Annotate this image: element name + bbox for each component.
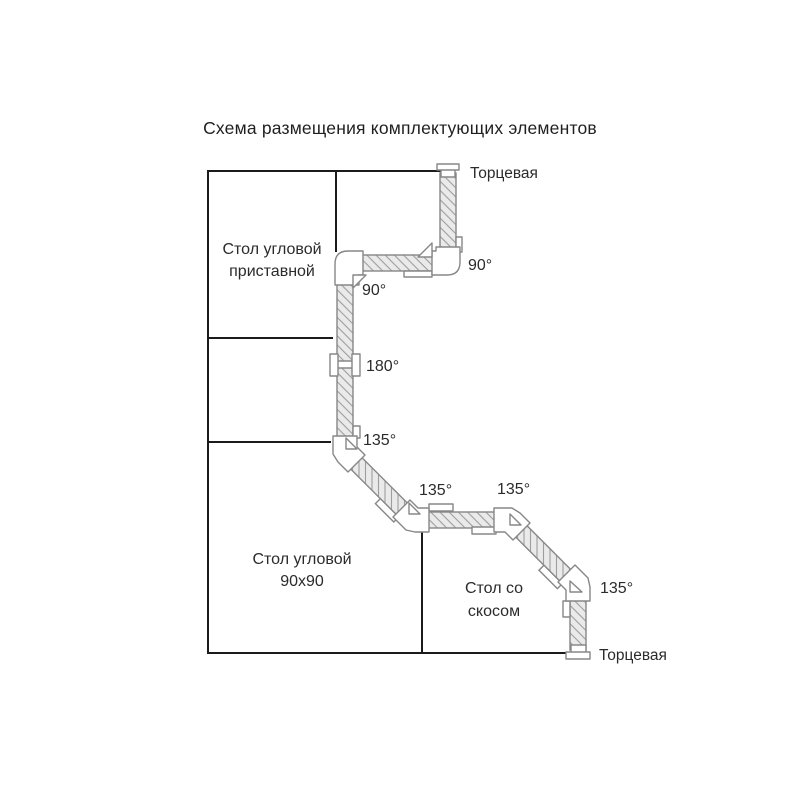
- corner-tab: [418, 243, 432, 257]
- strip-vertical-top: [440, 173, 456, 253]
- diagram-canvas: [0, 0, 800, 800]
- end-cap-label-top: Торцевая: [470, 163, 538, 185]
- end-cap-label-bottom: Торцевая: [599, 645, 667, 667]
- clip-flange: [404, 271, 432, 277]
- diagram-page: Схема размещения комплектующих элементов: [0, 0, 800, 800]
- angle-label-180: 180°: [366, 356, 399, 378]
- table-label-line: Стол угловой: [222, 549, 382, 571]
- strip-horizontal-bottom: [420, 512, 502, 528]
- table-label-line: приставной: [207, 261, 337, 283]
- angle-label-135-4: 135°: [600, 578, 633, 600]
- table-label-corner-attached: Стол угловой приставной: [207, 239, 337, 283]
- table-label-corner-90x90: Стол угловой 90х90: [222, 549, 382, 593]
- angle-label-135-2: 135°: [419, 480, 452, 502]
- strip-vertical-middle: [337, 259, 353, 445]
- angle-label-90-left: 90°: [362, 280, 386, 302]
- clip-flange: [563, 601, 570, 617]
- table-label-line: 90х90: [222, 571, 382, 593]
- corner-90-connector-right: [432, 247, 460, 275]
- clip-flange: [472, 527, 496, 534]
- table-label-line: скосом: [424, 600, 564, 623]
- clip-flange: [429, 504, 453, 511]
- angle-label-90-right: 90°: [468, 255, 492, 277]
- angle-label-135-3: 135°: [497, 479, 530, 501]
- table-label-beveled: Стол со скосом: [424, 577, 564, 623]
- table-label-line: Стол со: [424, 577, 564, 600]
- table-label-line: Стол угловой: [207, 239, 337, 261]
- angle-label-135-1: 135°: [363, 430, 396, 452]
